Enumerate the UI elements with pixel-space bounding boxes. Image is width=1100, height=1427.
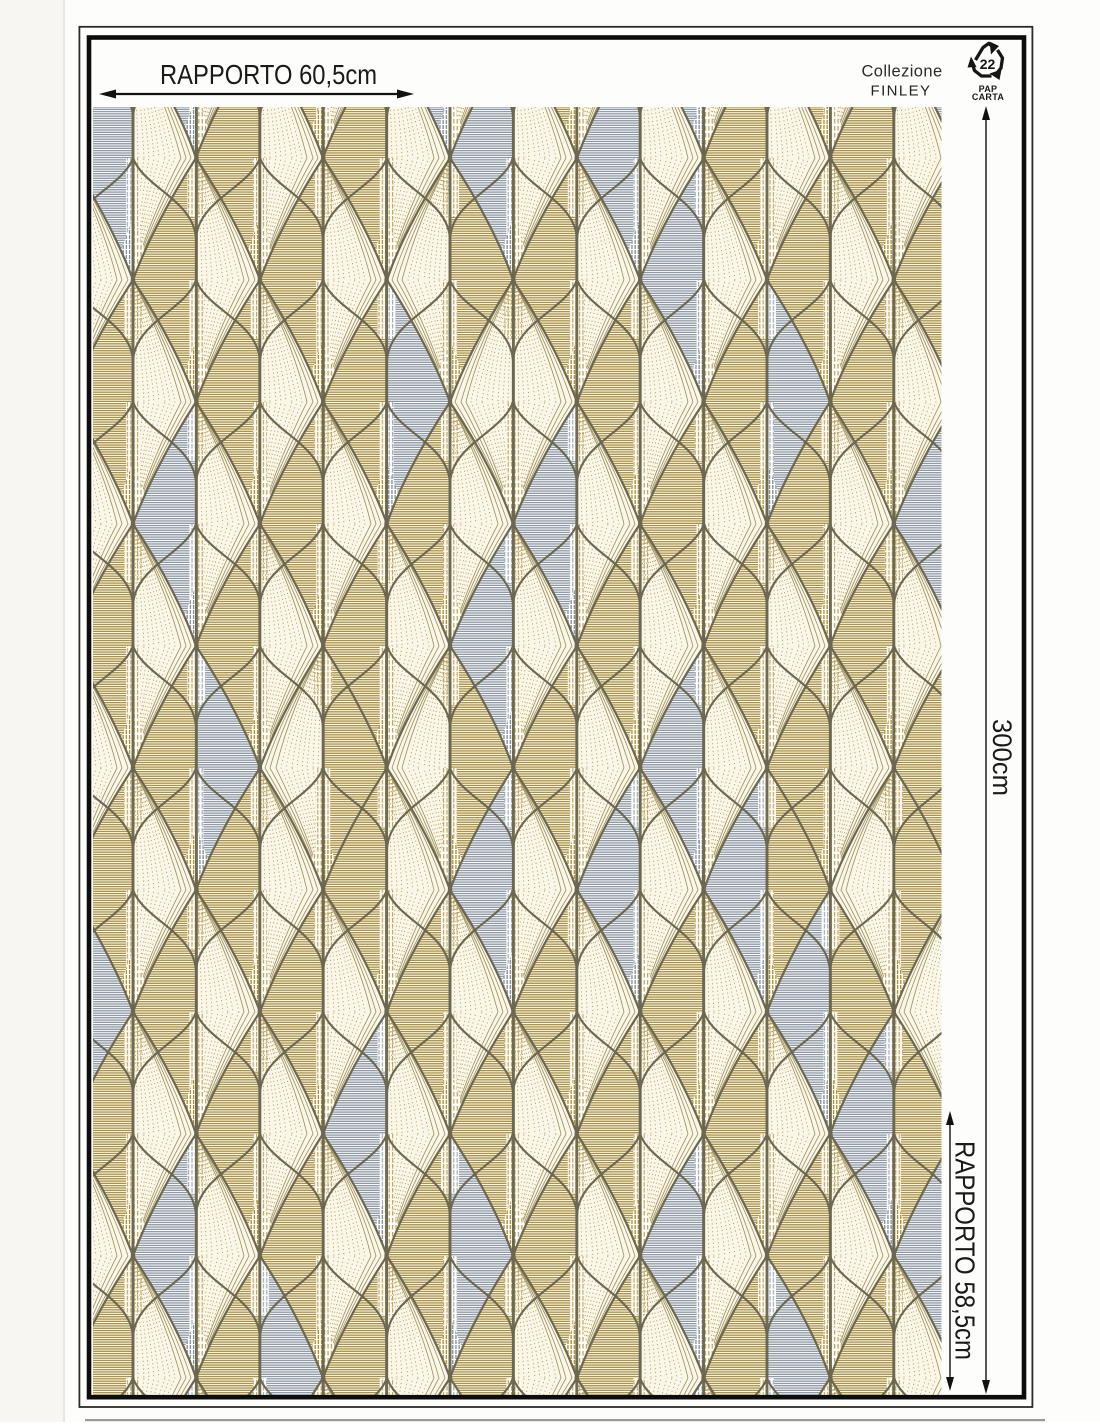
svg-text:RAPPORTO 60,5cm: RAPPORTO 60,5cm: [160, 59, 377, 90]
svg-text:300cm: 300cm: [987, 719, 1017, 796]
svg-text:CARTA: CARTA: [972, 92, 1005, 102]
svg-text:Collezione: Collezione: [861, 63, 942, 81]
svg-text:FINLEY: FINLEY: [871, 83, 932, 100]
svg-text:RAPPORTO 58,5cm: RAPPORTO 58,5cm: [950, 1141, 981, 1360]
svg-text:22: 22: [980, 56, 996, 72]
